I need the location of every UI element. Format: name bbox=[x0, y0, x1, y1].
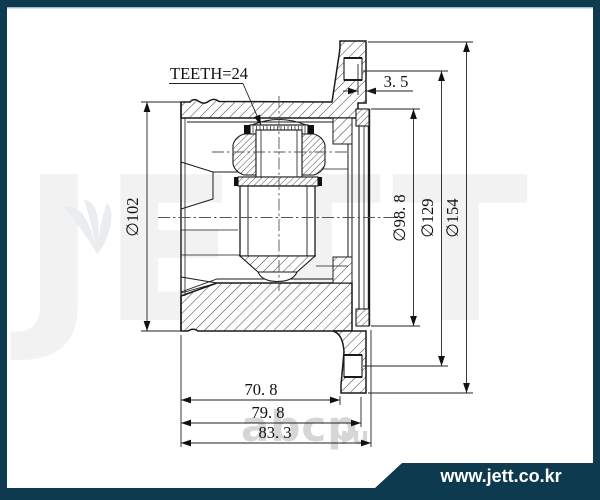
shop-watermark-tld: .ru bbox=[331, 422, 369, 450]
technical-drawing-cv-joint: JETT abcp .ru bbox=[0, 0, 600, 500]
dim-teeth-label: TEETH=24 bbox=[170, 64, 248, 83]
flange-bolt-hole-top bbox=[344, 58, 362, 80]
thrust-washer bbox=[238, 177, 318, 186]
frame-inner-top-line bbox=[7, 7, 593, 8]
dim-cover-diameter-label: ∅98. 8 bbox=[390, 194, 409, 241]
roller-left bbox=[233, 134, 256, 175]
dim-length-to-flange-label: 79. 8 bbox=[252, 403, 285, 422]
dim-flange-diameter-label: ∅154 bbox=[443, 198, 462, 237]
site-banner: www.jett.co.kr bbox=[375, 463, 593, 488]
dim-plate-thickness-label: 3. 5 bbox=[384, 72, 409, 91]
flange-bolt-hole-bottom bbox=[344, 355, 362, 377]
dim-outer-diameter-label: ∅102 bbox=[123, 197, 142, 236]
dim-housing-length-label: 70. 8 bbox=[245, 380, 278, 399]
site-banner-url: www.jett.co.kr bbox=[439, 466, 561, 486]
product-image: JETT abcp .ru bbox=[0, 0, 600, 500]
roller-right bbox=[302, 134, 325, 175]
dim-total-length-label: 83. 3 bbox=[259, 423, 292, 442]
dim-bolt-circle-label: ∅129 bbox=[418, 198, 437, 237]
